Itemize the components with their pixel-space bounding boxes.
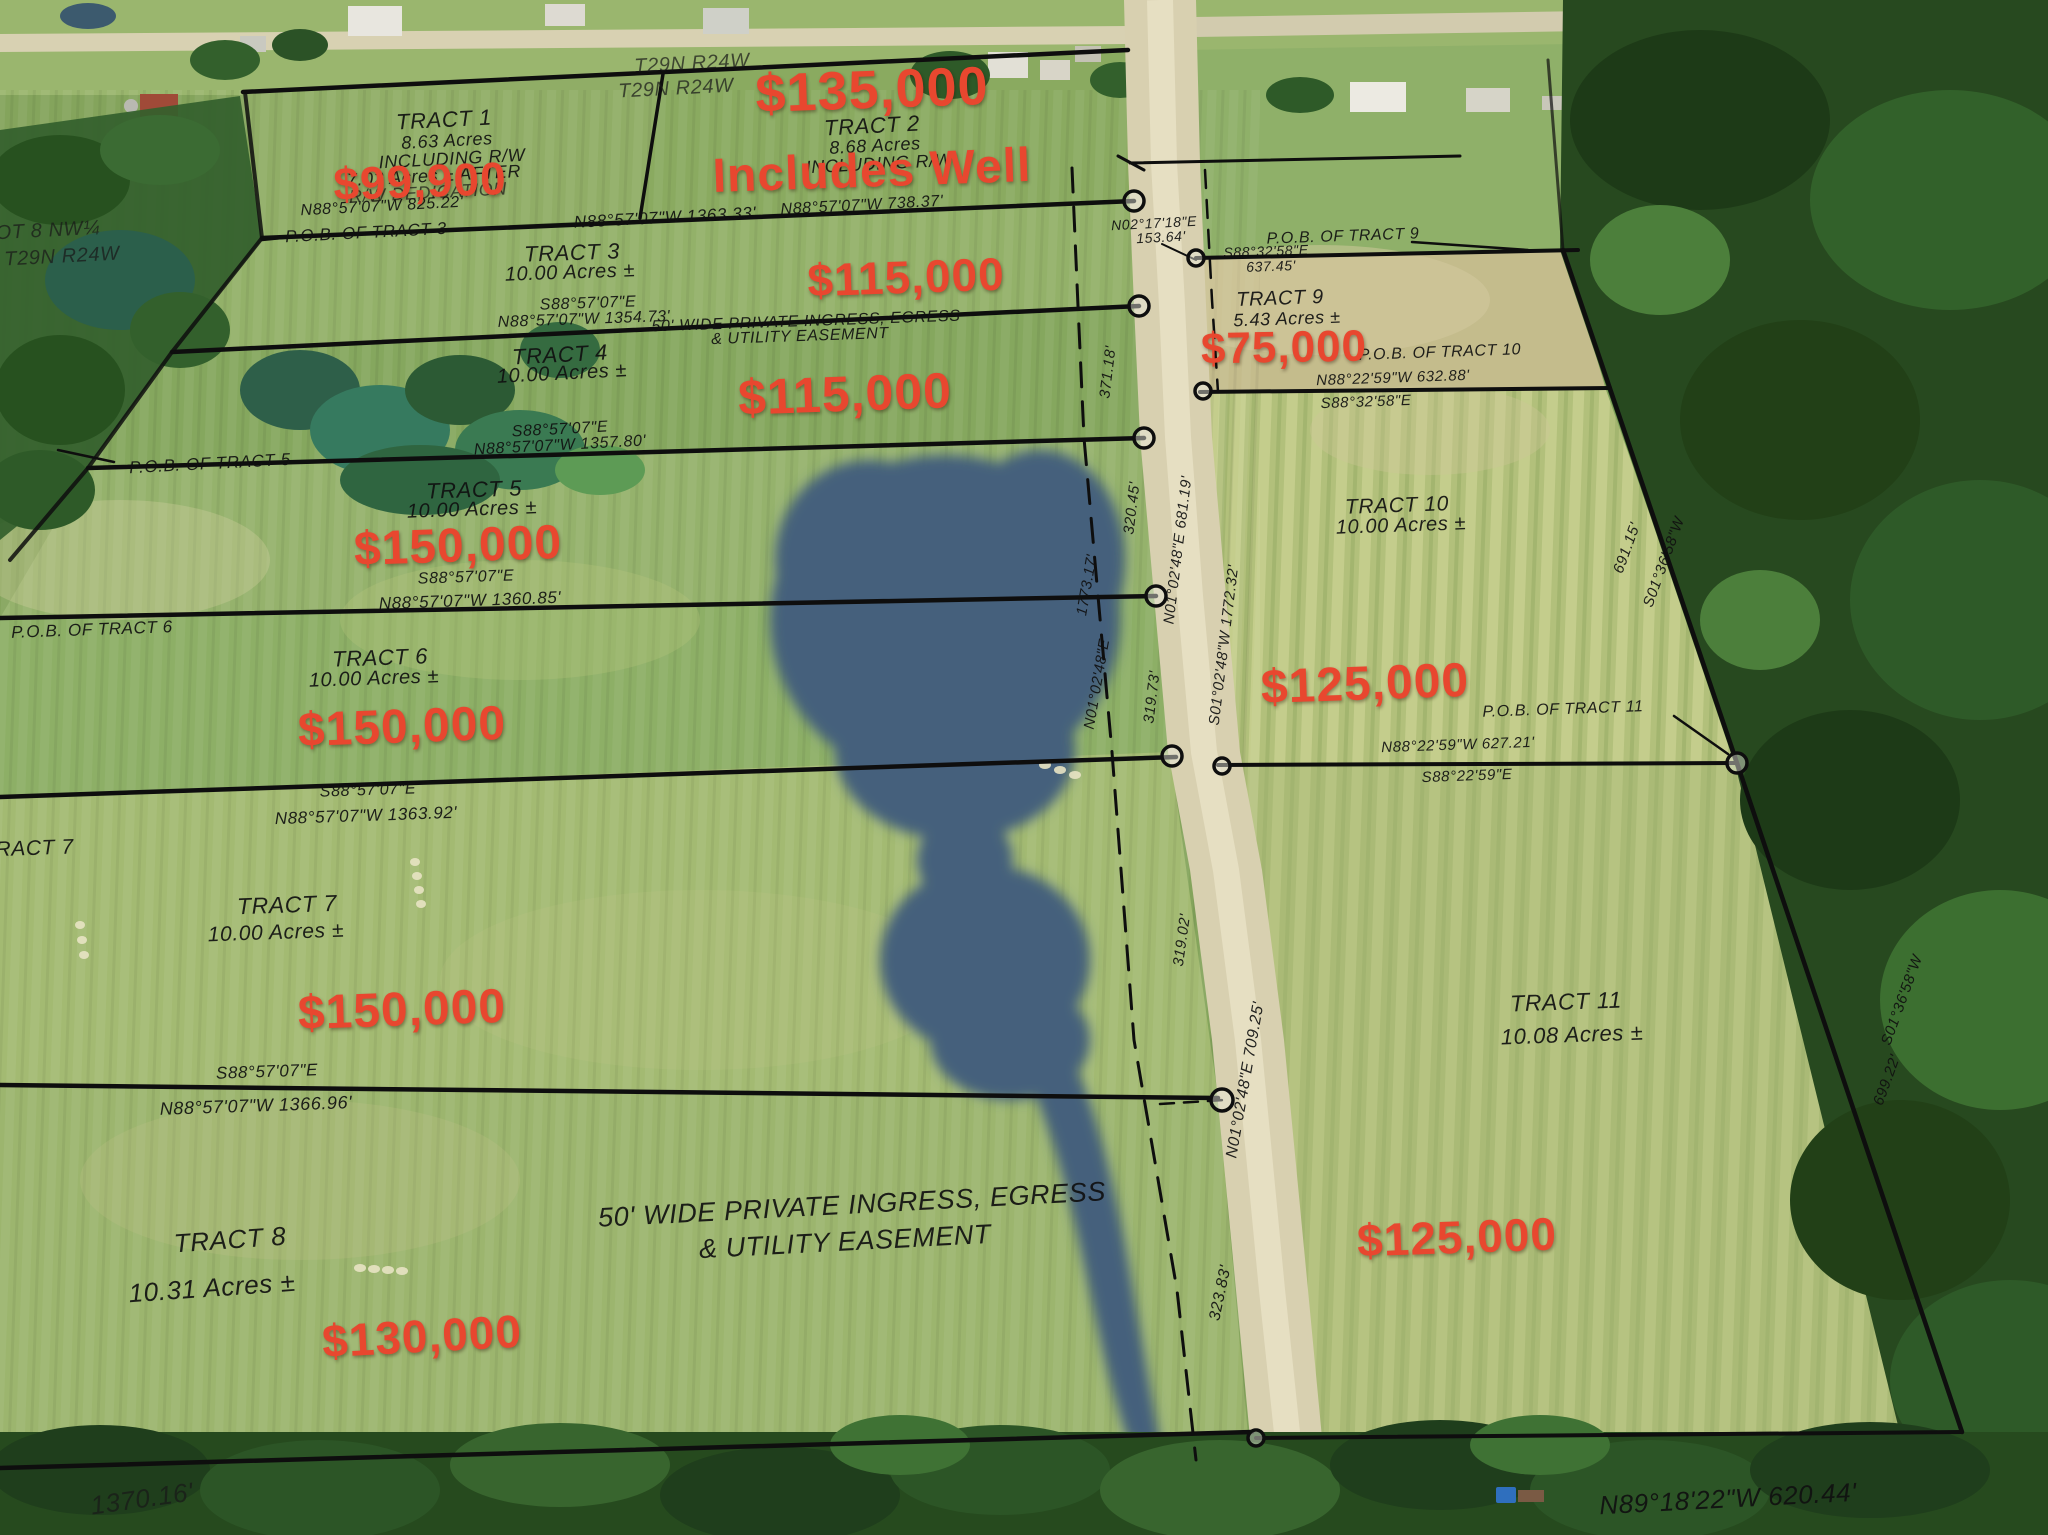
bearing-s8857-4: S88°57'07"E: [319, 780, 416, 801]
price-tract-6: $150,000: [297, 696, 507, 758]
price-tract-1: $99,900: [332, 151, 507, 211]
tract-7-title: TRACT 7: [237, 890, 338, 920]
bearing-e3: 637.45': [1246, 257, 1296, 275]
price-tract-2: $135,000: [754, 55, 989, 125]
tract-7-edge-label: TRACT 7: [0, 835, 74, 862]
price-tract-4: $115,000: [737, 361, 953, 426]
tract-11-title: TRACT 11: [1510, 987, 1623, 1018]
price-tract-11: $125,000: [1356, 1207, 1558, 1268]
tract-6-acreage: 10.00 Acres ±: [308, 665, 439, 693]
price-tract-5: $150,000: [353, 515, 563, 577]
price-tract-9: $75,000: [1201, 322, 1368, 375]
bearing-s8857-5: S88°57'07"E: [216, 1060, 319, 1084]
price-tract-10: $125,000: [1260, 653, 1470, 715]
price-tract-3: $115,000: [806, 247, 1005, 308]
plat-aerial-map: T29N R24W T29N R24W OT 8 NW¼ T29N R24W T…: [0, 0, 2048, 1535]
bearing-e1b: 153.64': [1136, 228, 1186, 247]
tract-3-acreage: 10.00 Acres ±: [504, 259, 635, 287]
tract-10-acreage: 10.00 Acres ±: [1335, 512, 1466, 540]
tract-7-acreage: 10.00 Acres ±: [207, 919, 344, 948]
tract-11-acreage: 10.08 Acres ±: [1500, 1020, 1643, 1051]
bearing-e5: S88°32'58"E: [1320, 392, 1411, 412]
bearing-e9: S88°22'59"E: [1421, 766, 1512, 786]
price-tract-8: $130,000: [321, 1304, 523, 1368]
price-note-tract-2: Includes Well: [712, 138, 1033, 204]
price-tract-7: $150,000: [297, 979, 507, 1041]
